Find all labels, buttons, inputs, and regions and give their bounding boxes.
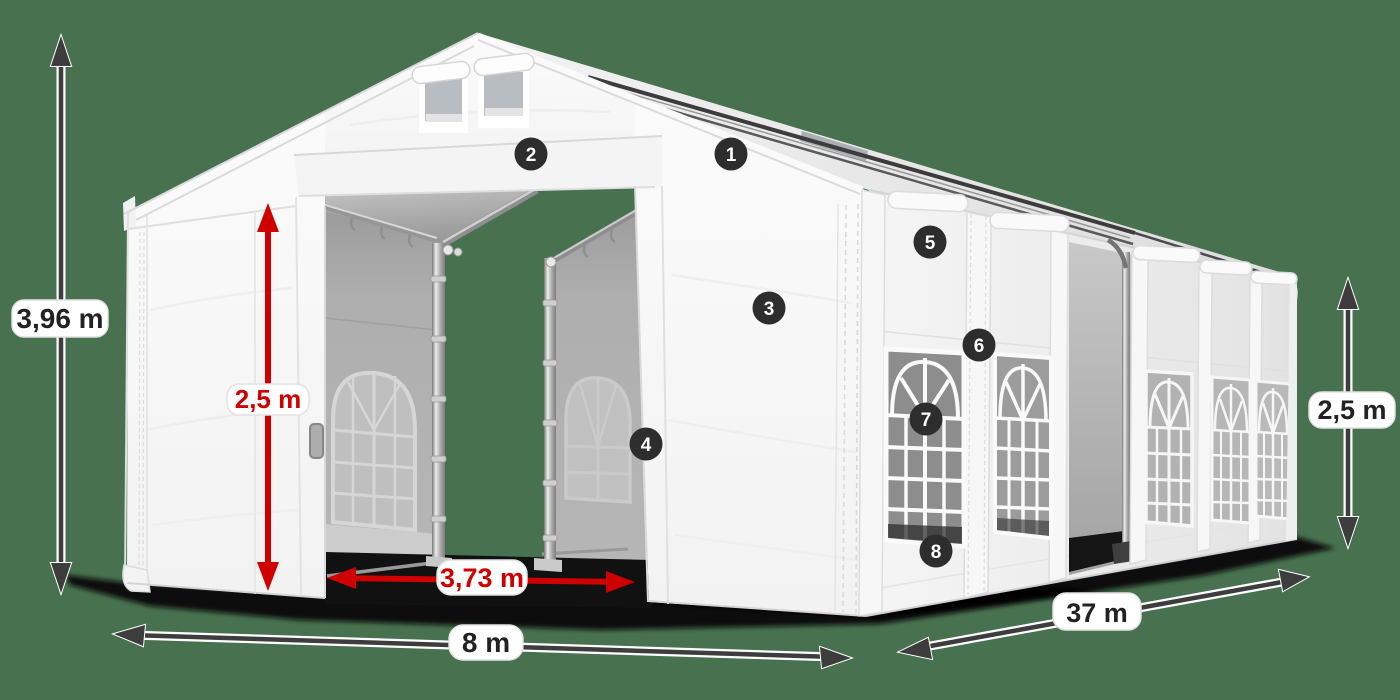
svg-text:3,73 m: 3,73 m: [440, 563, 524, 593]
svg-text:2,5 m: 2,5 m: [235, 384, 302, 414]
svg-text:1: 1: [726, 145, 737, 166]
svg-text:4: 4: [641, 435, 652, 456]
svg-text:3: 3: [764, 299, 775, 320]
svg-text:7: 7: [921, 410, 932, 431]
svg-text:2,5 m: 2,5 m: [1317, 395, 1386, 425]
svg-text:8: 8: [931, 542, 942, 563]
svg-text:5: 5: [925, 233, 936, 254]
svg-text:37 m: 37 m: [1066, 598, 1128, 628]
svg-text:8 m: 8 m: [462, 627, 510, 658]
svg-text:6: 6: [974, 336, 985, 357]
svg-text:3,96 m: 3,96 m: [16, 303, 103, 334]
svg-text:2: 2: [526, 145, 537, 166]
